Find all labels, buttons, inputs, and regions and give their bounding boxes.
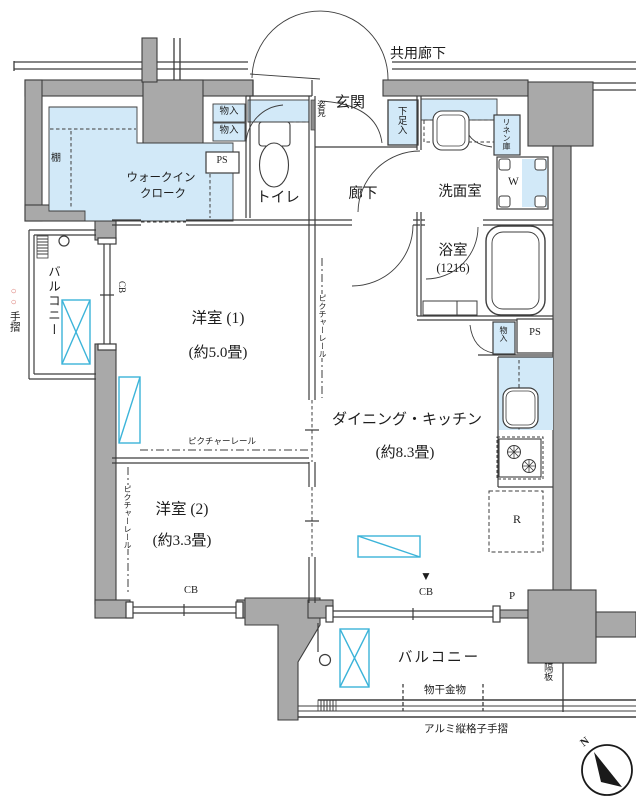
label-picture-rail-bottom: ピクチャーレール	[187, 437, 257, 447]
label-pipe: P	[509, 590, 515, 602]
label-washer: W	[508, 176, 519, 189]
label-handrail-circles: ○○	[8, 286, 19, 308]
label-mirror: 姿見	[316, 100, 326, 117]
label-linen: リネン庫	[501, 118, 510, 150]
label-room2: 洋室 (2)	[156, 501, 209, 518]
label-wic-line1: ウォークイン	[127, 172, 196, 185]
label-cb-dk: CB	[419, 587, 433, 599]
windows	[98, 238, 500, 622]
compass	[582, 745, 632, 795]
label-hallway: 廊下	[349, 186, 378, 202]
floor-plan-drawing	[0, 0, 636, 800]
label-balcony-left: バルコニー	[46, 265, 60, 338]
mirror-strip	[311, 100, 315, 130]
label-picture-rail-room2: ピクチャーレール	[121, 485, 132, 549]
label-entrance: 玄関	[335, 95, 365, 112]
bathtub	[486, 226, 545, 315]
label-room2-size: (約3.3畳)	[153, 533, 212, 550]
label-aluminum-handrail: アルミ縦格子手摺	[424, 724, 508, 736]
label-storage-top-2: 物入	[219, 126, 238, 137]
highlight-areas	[49, 99, 553, 430]
label-dk: ダイニング・キッチン	[332, 412, 482, 429]
label-washroom: 洗面室	[438, 184, 482, 200]
label-bathroom: 浴室	[439, 243, 468, 259]
label-balcony-bottom: バルコニー	[398, 650, 480, 666]
label-picture-rail-right: ピクチャーレール	[316, 294, 327, 358]
label-laundry-hardware: 物干金物	[424, 685, 466, 697]
label-storage-top-1: 物入	[219, 107, 238, 118]
label-storage-lower: 物入	[498, 326, 507, 342]
label-handrail: 手摺	[8, 311, 20, 332]
label-room1-size: (約5.0畳)	[189, 345, 248, 362]
label-cb-room2: CB	[184, 585, 198, 597]
label-shelf: 棚	[51, 153, 61, 164]
label-wic-line2: クローク	[140, 188, 186, 201]
floor-plan: 共用廊下 玄関 姿見 下足入 物入 物入 PS トイレ 棚 ウォークイン クロー…	[0, 0, 636, 800]
label-toilet: トイレ	[256, 190, 300, 206]
toilet-tank	[259, 122, 290, 146]
label-shoe-box: 下足入	[395, 106, 406, 135]
stove	[499, 439, 541, 477]
label-bathroom-size: (1216)	[436, 261, 469, 275]
kitchen-sink	[503, 388, 538, 428]
toilet-bowl	[260, 143, 289, 187]
label-dk-size: (約8.3畳)	[376, 445, 435, 462]
marker-triangle: ▼	[420, 570, 432, 583]
label-ps-lower: PS	[529, 327, 541, 339]
label-partition: 隔板	[543, 663, 553, 681]
label-cb-left: CB	[117, 281, 127, 293]
label-common-corridor: 共用廊下	[390, 47, 446, 63]
label-ps-top: PS	[216, 155, 227, 166]
label-fridge: R	[513, 513, 521, 526]
label-room1: 洋室 (1)	[192, 310, 245, 327]
